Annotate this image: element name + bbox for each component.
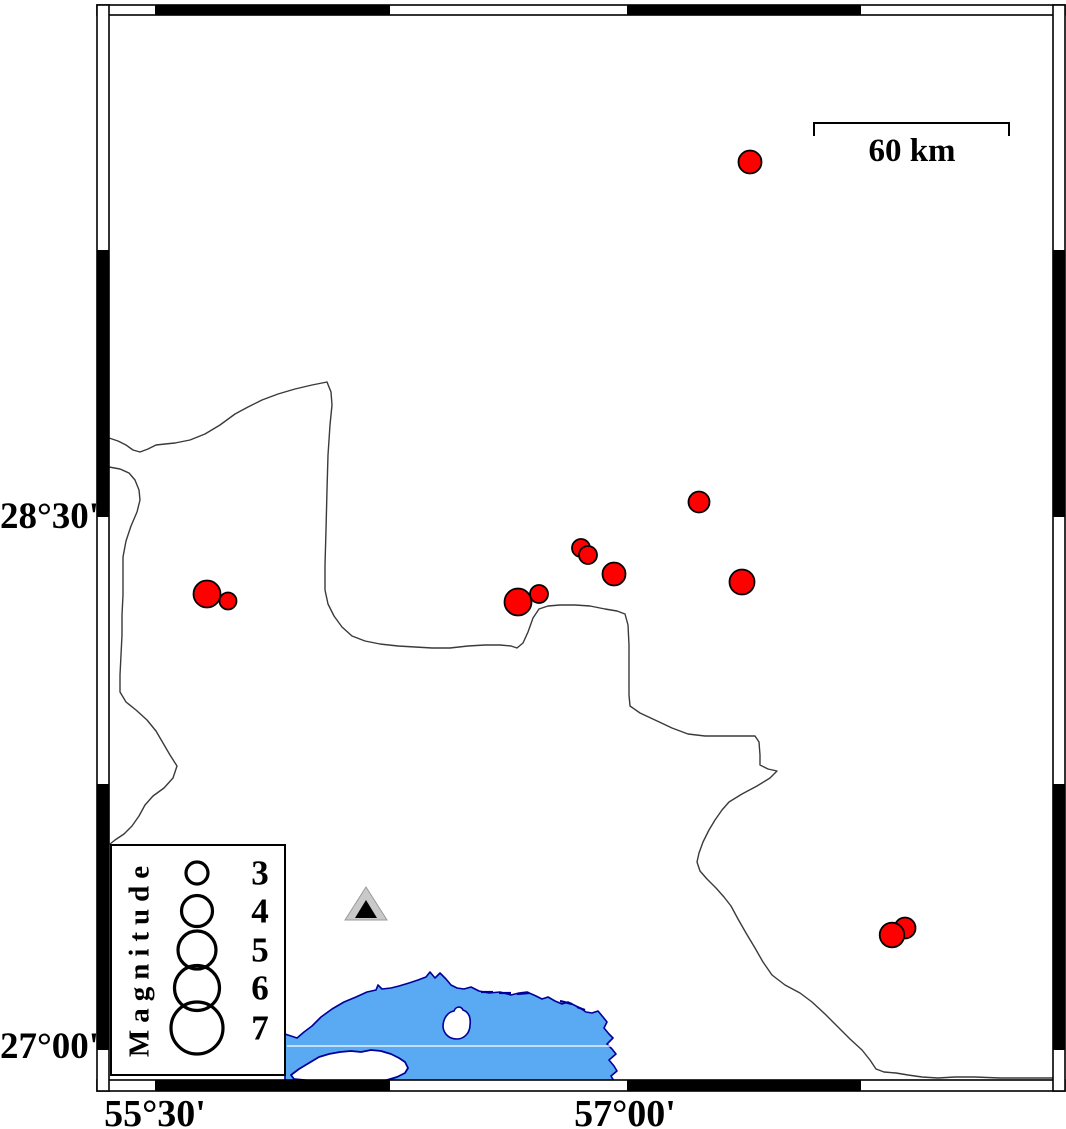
water-body (285, 972, 617, 1084)
axis-label-lat-2700: 27°00' (0, 1025, 88, 1069)
legend-magnitude-label: 7 (251, 1011, 269, 1046)
axis-label-lon-5700: 57°00' (535, 1092, 715, 1129)
earthquake-marker (194, 581, 221, 608)
legend-magnitude-label: 6 (251, 971, 269, 1006)
scale-bar-label: 60 km (822, 132, 1002, 170)
seismicity-map-figure: 28°30' 27°00' 55°30' 57°00' 60 km Magnit… (0, 0, 1066, 1129)
earthquake-marker (505, 589, 532, 616)
earthquake-marker (220, 593, 237, 610)
axis-label-lat-2830: 28°30' (0, 495, 88, 539)
legend-title: Magnitude (124, 859, 157, 1057)
earthquake-marker (579, 546, 597, 564)
earthquake-marker (730, 570, 755, 595)
axis-label-lon-5530: 55°30' (65, 1092, 245, 1129)
legend-magnitude-label: 3 (251, 856, 269, 891)
earthquake-markers (194, 151, 916, 948)
legend-magnitude-label: 5 (251, 933, 269, 968)
legend-magnitude-label: 4 (251, 894, 269, 929)
earthquake-marker (689, 492, 710, 513)
earthquake-marker (530, 585, 548, 603)
boundary-line-west (109, 467, 177, 844)
earthquake-marker (739, 151, 762, 174)
earthquake-marker (880, 923, 905, 948)
earthquake-marker (603, 563, 626, 586)
station-triangle-icon (345, 887, 387, 920)
